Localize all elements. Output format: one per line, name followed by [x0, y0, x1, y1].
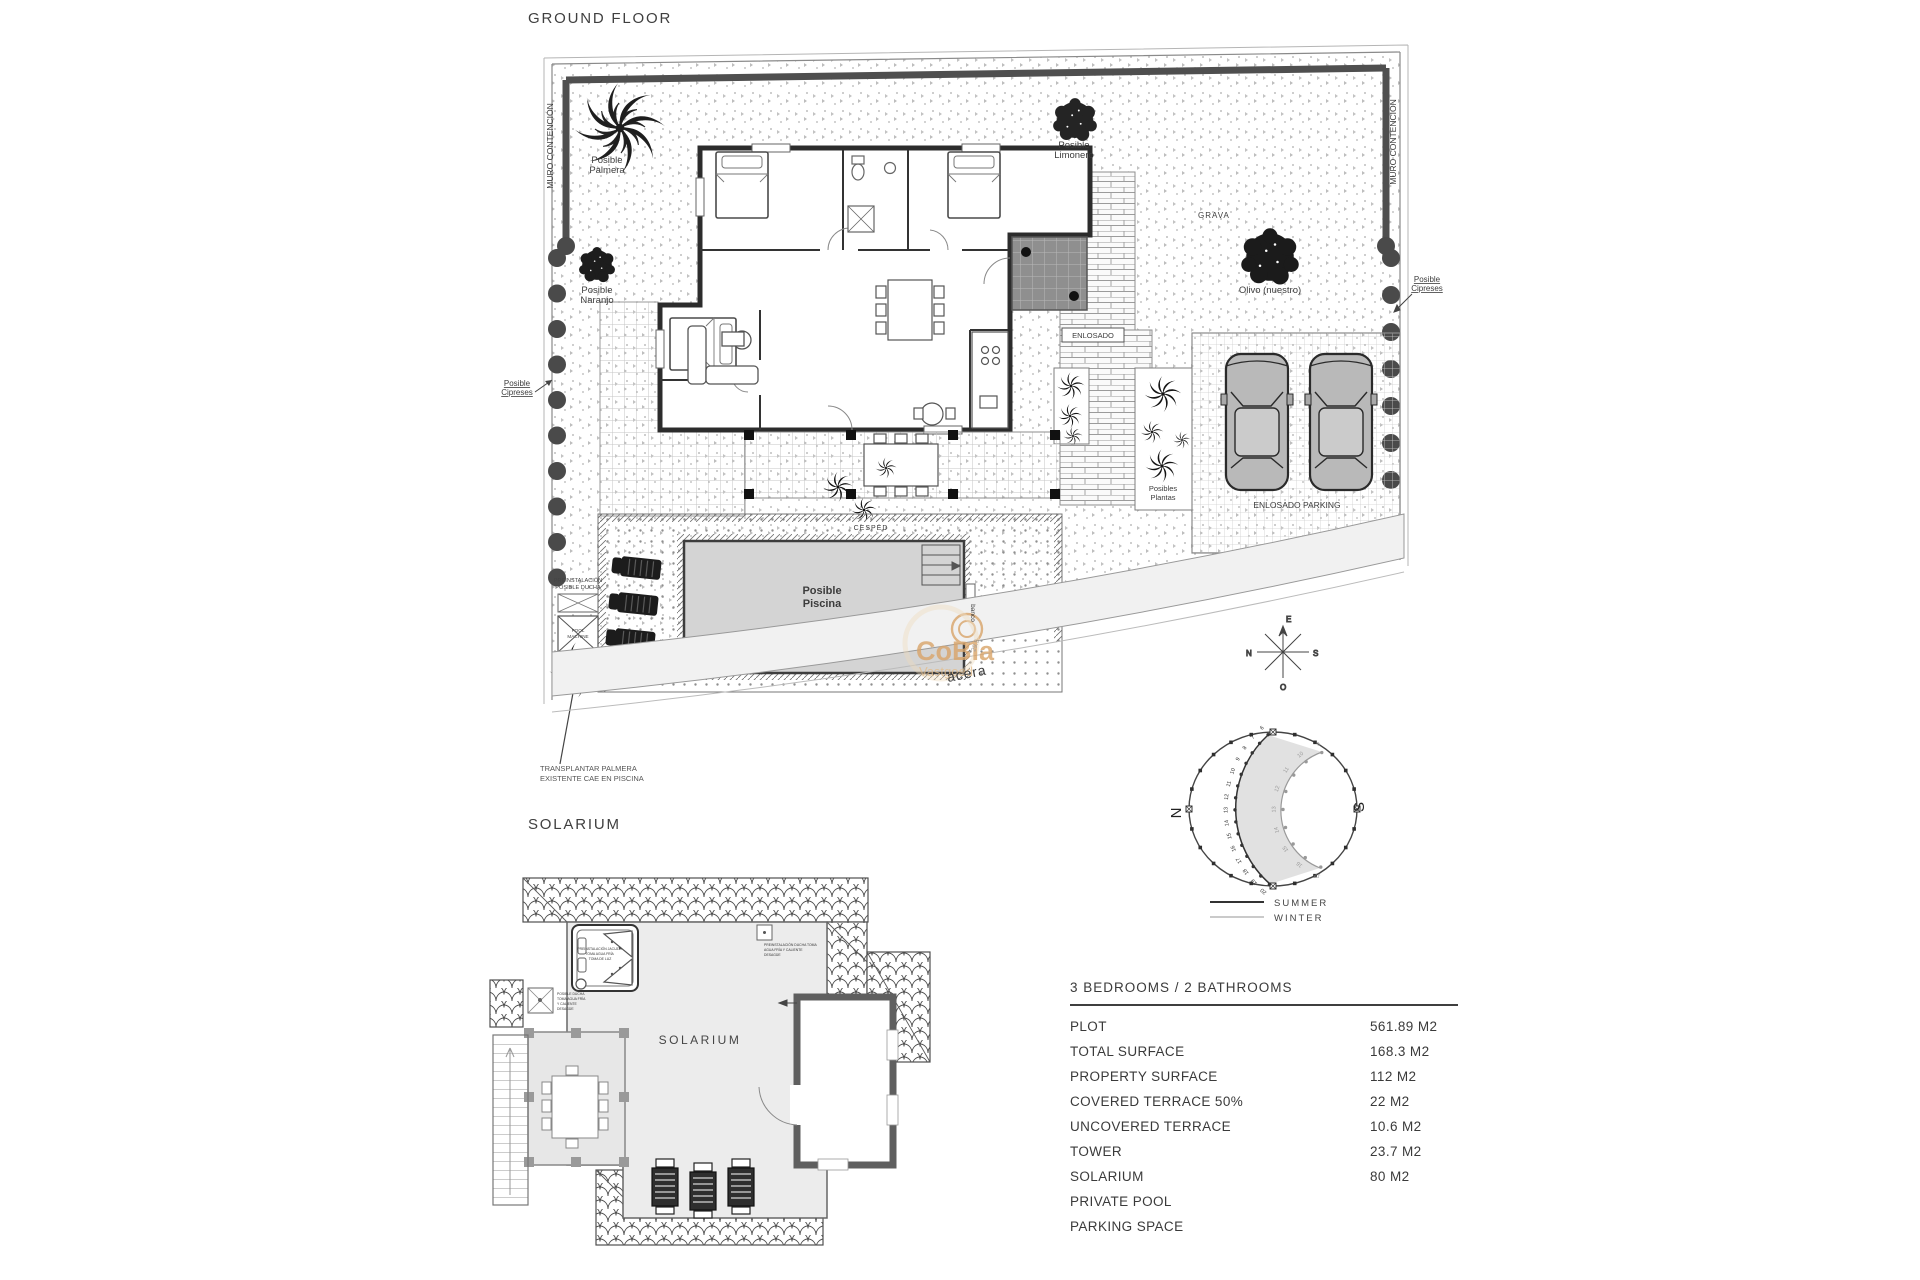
olivo-label: Olivo (nuestro) — [1239, 285, 1301, 296]
covered-terrace — [744, 430, 1060, 499]
bed-icon — [716, 152, 768, 218]
table-row: PARKING SPACE — [1070, 1214, 1458, 1239]
posible-piscina-label: PosiblePiscina — [802, 585, 842, 610]
row-label: PLOT — [1070, 1014, 1370, 1039]
row-value: 168.3 M2 — [1370, 1039, 1458, 1064]
bed-icon-2 — [948, 152, 1000, 218]
posible-limonero-label: PosibleLimonero — [1054, 140, 1094, 161]
solarium-table-icon — [542, 1066, 608, 1148]
svg-text:8: 8 — [1242, 745, 1249, 751]
svg-text:16: 16 — [1230, 844, 1238, 852]
table-row: PROPERTY SURFACE112 M2 — [1070, 1064, 1458, 1089]
svg-text:12: 12 — [1224, 793, 1231, 800]
row-value: 23.7 M2 — [1370, 1139, 1458, 1164]
grava-label: GRAVA — [1198, 211, 1230, 220]
sun-legend: SUMMER WINTER — [1210, 898, 1328, 924]
table-row: TOWER23.7 M2 — [1070, 1139, 1458, 1164]
svg-text:PosibleCipreses: PosibleCipreses — [501, 379, 533, 397]
header-rule — [1070, 1004, 1458, 1006]
table-row: SOLARIUM80 M2 — [1070, 1164, 1458, 1189]
table-row: PLOT561.89 M2 — [1070, 1014, 1458, 1039]
dining-table-icon — [876, 280, 944, 340]
muro-contencion-left-label: MURO CONTENCIÓN — [545, 103, 555, 188]
svg-text:PosibleCipreses: PosibleCipreses — [1411, 275, 1443, 293]
table-row: PRIVATE POOL — [1070, 1189, 1458, 1214]
property-header: 3 BEDROOMS / 2 BATHROOMS — [1070, 980, 1458, 1004]
car-icon-2 — [1305, 354, 1377, 490]
sun-path-diagram: 67891011121314151617181920 9101112131415… — [1168, 725, 1368, 924]
solarium-lounger-icon-2 — [690, 1163, 716, 1218]
cesped-label: CESPED — [854, 525, 889, 532]
site-plan-drawing: E N S O CoBla Vastgoed 29.5 MURO CONTENC… — [0, 0, 1920, 1280]
property-summary: 3 BEDROOMS / 2 BATHROOMS PLOT561.89 M2 T… — [1070, 980, 1458, 1239]
svg-text:20: 20 — [1260, 887, 1269, 896]
stairs — [493, 1035, 528, 1205]
row-label: PARKING SPACE — [1070, 1214, 1370, 1239]
pool-equipment — [558, 594, 598, 652]
compass-s: S — [1313, 649, 1318, 658]
row-value: 10.6 M2 — [1370, 1114, 1458, 1139]
svg-text:9: 9 — [1235, 757, 1242, 762]
svg-text:14: 14 — [1224, 820, 1231, 827]
row-label: SOLARIUM — [1070, 1164, 1370, 1189]
kitchen-icons — [972, 332, 1008, 428]
summer-legend-label: SUMMER — [1274, 898, 1328, 909]
row-value — [1370, 1214, 1458, 1239]
row-value: 22 M2 — [1370, 1089, 1458, 1114]
enlosado-label: ENLOSADO — [1062, 328, 1124, 342]
solarium-room-label: SOLARIUM — [659, 1033, 742, 1047]
svg-text:18: 18 — [1242, 867, 1250, 875]
compass-o: O — [1280, 683, 1286, 692]
plan-sheet: GROUND FLOOR SOLARIUM — [0, 0, 1920, 1280]
posibles-plantas-label: PosiblesPlantas — [1149, 484, 1178, 502]
row-value: 112 M2 — [1370, 1064, 1458, 1089]
compass-rose: E N S O — [1246, 615, 1318, 692]
row-label: PROPERTY SURFACE — [1070, 1064, 1370, 1089]
svg-text:11: 11 — [1226, 780, 1233, 787]
row-label: UNCOVERED TERRACE — [1070, 1114, 1370, 1139]
row-label: TOWER — [1070, 1139, 1370, 1164]
sun-south-label: S — [1351, 802, 1368, 812]
muro-contencion-right-label: MURO CONTENCIÓN — [1388, 99, 1398, 184]
row-value — [1370, 1189, 1458, 1214]
row-label: TOTAL SURFACE — [1070, 1039, 1370, 1064]
compass-n: N — [1246, 649, 1252, 658]
solarium-plan: SOLARIUM PREINSTALACIÓN JACUZZI TOMA AGU… — [490, 878, 930, 1245]
car-icon — [1221, 354, 1293, 490]
sun-north-label: N — [1168, 808, 1185, 819]
svg-text:17: 17 — [1235, 856, 1243, 864]
row-label: PRIVATE POOL — [1070, 1189, 1370, 1214]
posible-cipreses-right-label: PosibleCipreses — [1394, 275, 1443, 312]
compass-e: E — [1286, 615, 1291, 624]
table-row: TOTAL SURFACE168.3 M2 — [1070, 1039, 1458, 1064]
row-label: COVERED TERRACE 50% — [1070, 1089, 1370, 1114]
outdoor-dining-icon — [864, 434, 938, 496]
pergola-room — [524, 1028, 629, 1167]
table-row: UNCOVERED TERRACE10.6 M2 — [1070, 1114, 1458, 1139]
transplantar-note: TRANSPLANTAR PALMERAEXISTENTE CAE EN PIS… — [540, 764, 644, 783]
svg-text:13: 13 — [1271, 806, 1277, 812]
enlosado-parking-label: ENLOSADO PARKING — [1253, 500, 1340, 510]
svg-text:13: 13 — [1223, 807, 1229, 813]
posible-naranjo-label: PosibleNaranjo — [580, 285, 613, 306]
posible-palmera-label: PosiblePalmera — [589, 155, 625, 176]
svg-text:ENLOSADO: ENLOSADO — [1072, 331, 1114, 340]
banco-label: banco — [969, 604, 976, 622]
ground-floor-plan: E N S O CoBla Vastgoed 29.5 MURO CONTENC… — [501, 45, 1443, 783]
winter-legend-label: WINTER — [1274, 913, 1323, 924]
solarium-lounger-icon-3 — [728, 1159, 754, 1214]
svg-text:6: 6 — [1259, 725, 1265, 732]
svg-text:15: 15 — [1226, 832, 1233, 839]
solarium-lounger-icon — [652, 1159, 678, 1214]
svg-text:10: 10 — [1229, 767, 1237, 775]
row-value: 80 M2 — [1370, 1164, 1458, 1189]
jacuzzi: PREINSTALACIÓN JACUZZI TOMA AGUA FRÍA TO… — [572, 925, 638, 991]
table-row: COVERED TERRACE 50%22 M2 — [1070, 1089, 1458, 1114]
svg-text:7: 7 — [1250, 735, 1257, 741]
row-value: 561.89 M2 — [1370, 1014, 1458, 1039]
